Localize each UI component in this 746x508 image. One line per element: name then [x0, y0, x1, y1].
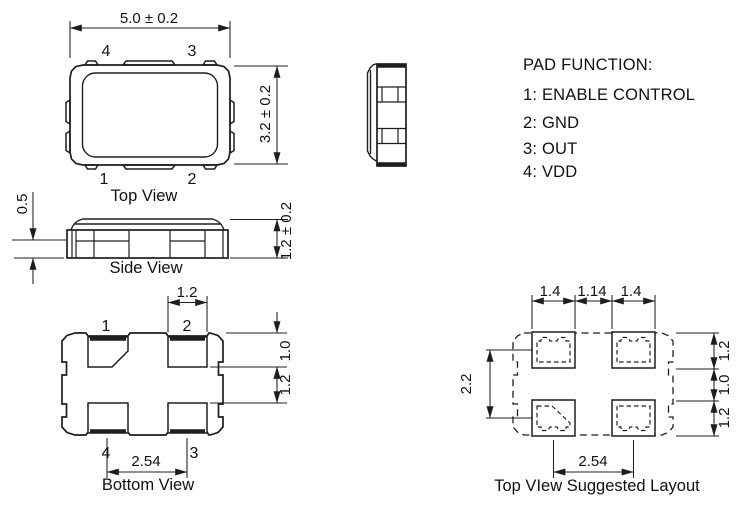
end-view-lid [368, 64, 378, 162]
bottom-view-pads [88, 337, 207, 433]
top-view-pin-2: 2 [188, 171, 197, 188]
layout-view: 1.4 1.14 1.4 2.2 1.2 1.0 1.2 [458, 283, 733, 495]
pad-3 [168, 403, 207, 433]
bottom-view-pin-4: 4 [102, 445, 111, 462]
pad-function-item-3: 3: OUT [523, 140, 577, 158]
top-view-label: Top View [111, 187, 178, 205]
pad-4 [88, 403, 128, 433]
bottom-view-pin-3: 3 [190, 445, 199, 462]
pad-2 [168, 337, 207, 367]
layout-top-dimensions: 1.4 1.14 1.4 [532, 283, 655, 329]
top-view-pin-3: 3 [188, 43, 197, 60]
layout-pad-gap-h-text: 1.14 [577, 283, 606, 300]
top-view: 5.0 ± 0.2 3.2 ± 0.2 4 3 1 2 Top View [66, 10, 288, 205]
drawing-canvas: 5.0 ± 0.2 3.2 ± 0.2 4 3 1 2 Top View [0, 0, 746, 508]
side-view-standoff-dimension: 0.5 [12, 192, 67, 284]
layout-view-label: Top VIew Suggested Layout [494, 477, 700, 495]
end-view [368, 64, 407, 167]
pad-1 [88, 337, 128, 367]
bottom-view-pad-height-text: 1.0 [277, 341, 294, 362]
layout-pad-width-left-text: 1.4 [540, 283, 561, 300]
pad-function-item-1: 1: ENABLE CONTROL [523, 86, 695, 104]
top-view-edge-pads [66, 61, 234, 169]
layout-pad-gap-v-text: 1.0 [716, 375, 733, 396]
side-view-standoff-dim-text: 0.5 [14, 194, 31, 215]
top-view-height-dim-text: 3.2 ± 0.2 [257, 85, 274, 143]
land-pad-top-right [612, 332, 655, 368]
end-view-body [377, 64, 406, 166]
bottom-view-pad-gap-text: 1.2 [277, 375, 294, 396]
end-view-pad-bands [377, 87, 406, 144]
layout-pad-height-bottom-text: 1.2 [716, 408, 733, 429]
top-view-pin-1: 1 [100, 171, 109, 188]
layout-land-pads [532, 332, 655, 436]
layout-pitch-text: 2.54 [578, 453, 607, 470]
bottom-view-label: Bottom View [102, 476, 194, 494]
pad-function-title: PAD FUNCTION: [523, 56, 653, 74]
bottom-view-pad-width-text: 1.2 [177, 284, 198, 301]
pad-function-item-2: 2: GND [523, 114, 579, 132]
side-view-height-dim-text: 1.2 ± 0.2 [278, 202, 295, 260]
bottom-view: 1.2 1.0 1.2 2.54 1 2 4 3 Bottom View [62, 284, 294, 494]
layout-right-dimensions: 1.2 1.0 1.2 [676, 333, 733, 436]
top-view-width-dimension: 5.0 ± 0.2 [70, 10, 230, 58]
top-view-height-dimension: 3.2 ± 0.2 [234, 66, 288, 164]
layout-pad-width-right-text: 1.4 [621, 283, 642, 300]
pad-function-item-4: 4: VDD [523, 163, 577, 181]
top-view-pin-4: 4 [102, 43, 111, 60]
top-view-package-outline [70, 65, 230, 165]
side-view-height-dimension: 1.2 ± 0.2 [230, 202, 295, 260]
side-view: 0.5 1.2 ± 0.2 Side View [12, 192, 295, 284]
land-pad-bottom-left [532, 400, 575, 436]
layout-left-dimension: 2.2 [458, 350, 533, 418]
bottom-view-pin-1: 1 [102, 318, 111, 335]
pad-function-block: PAD FUNCTION: 1: ENABLE CONTROL 2: GND 3… [523, 56, 695, 181]
top-view-lid [83, 73, 218, 157]
package-drawing: 5.0 ± 0.2 3.2 ± 0.2 4 3 1 2 Top View [0, 0, 746, 508]
land-pad-top-left [532, 332, 575, 368]
side-view-pad-lines [72, 230, 223, 258]
bottom-view-pitch-dimension: 2.54 [107, 438, 187, 478]
top-view-width-dim-text: 5.0 ± 0.2 [120, 10, 178, 27]
layout-pitch-dimension: 2.54 [554, 440, 634, 478]
land-pad-bottom-right [612, 400, 655, 436]
bottom-view-pitch-text: 2.54 [131, 453, 160, 470]
side-view-label: Side View [109, 259, 182, 277]
side-view-body [67, 230, 228, 258]
bottom-view-pin-2: 2 [183, 318, 192, 335]
layout-vertical-span-text: 2.2 [458, 374, 475, 395]
layout-pad-height-top-text: 1.2 [716, 341, 733, 362]
